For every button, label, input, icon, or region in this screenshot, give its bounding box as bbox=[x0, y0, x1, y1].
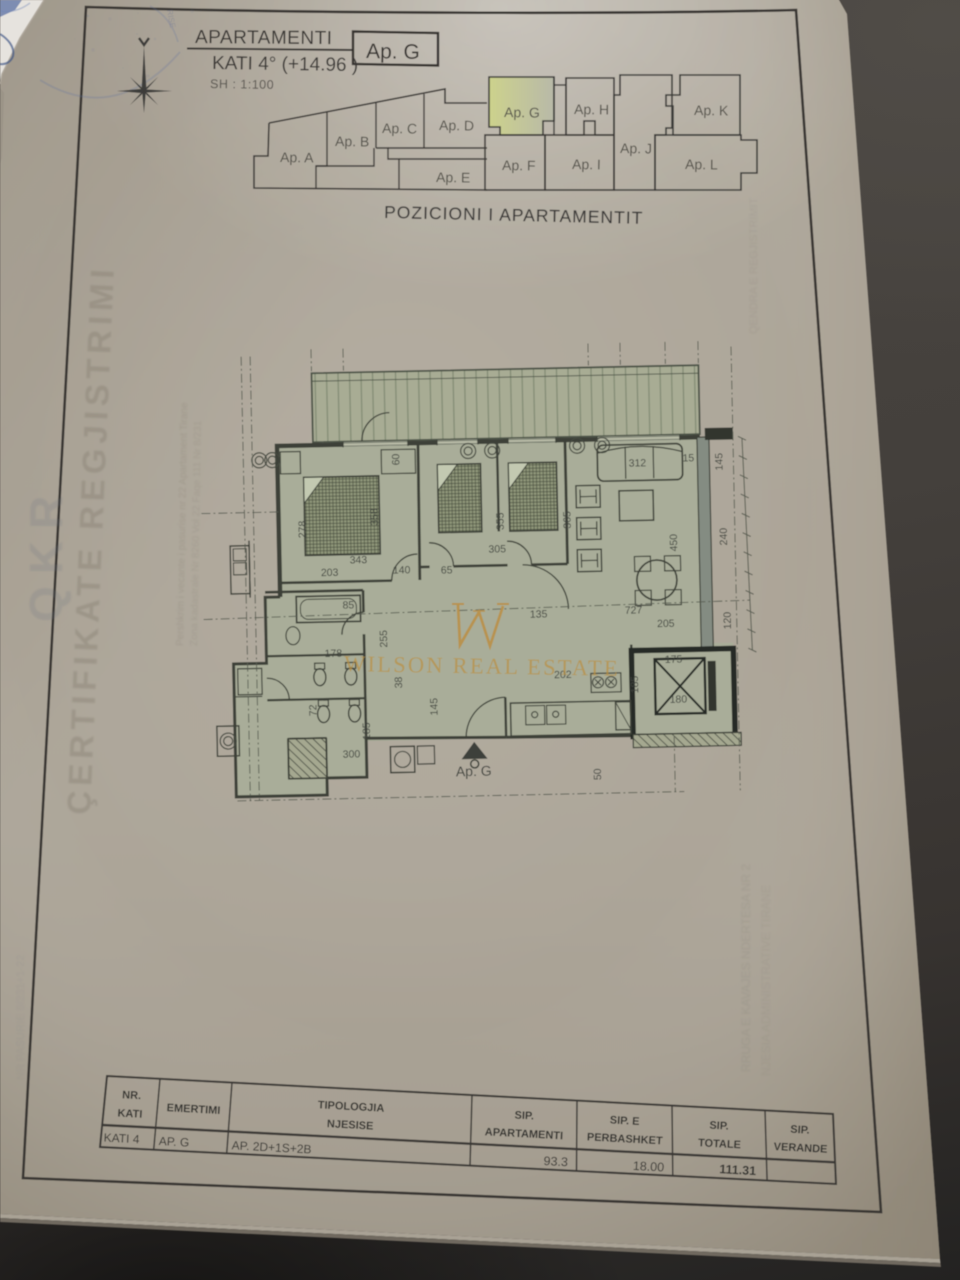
svg-text:Ap. K: Ap. K bbox=[694, 102, 729, 119]
svg-text:TOTALE: TOTALE bbox=[698, 1137, 742, 1151]
svg-text:727: 727 bbox=[625, 604, 643, 616]
svg-text:SIP. E: SIP. E bbox=[609, 1114, 639, 1128]
svg-text:Ap. I: Ap. I bbox=[572, 156, 601, 173]
svg-text:Ap. B: Ap. B bbox=[335, 133, 370, 150]
svg-text:185: 185 bbox=[629, 676, 641, 694]
svg-text:SH : 1:100: SH : 1:100 bbox=[210, 77, 274, 92]
svg-text:Ap. E: Ap. E bbox=[436, 169, 471, 186]
svg-text:QKR: QKR bbox=[20, 484, 72, 622]
svg-text:305: 305 bbox=[488, 543, 506, 555]
svg-text:NR PASURIE 8/231+1-22: NR PASURIE 8/231+1-22 bbox=[15, 955, 27, 1080]
svg-text:18.00: 18.00 bbox=[633, 1159, 665, 1175]
svg-text:111.31: 111.31 bbox=[719, 1162, 757, 1178]
svg-text:120: 120 bbox=[722, 612, 734, 630]
svg-text:APARTAMENTI: APARTAMENTI bbox=[195, 27, 333, 49]
svg-text:358: 358 bbox=[368, 508, 380, 526]
svg-text:255: 255 bbox=[378, 630, 390, 648]
svg-text:140: 140 bbox=[393, 564, 411, 576]
svg-text:Ap. G: Ap. G bbox=[504, 104, 540, 121]
svg-text:312: 312 bbox=[629, 457, 647, 469]
svg-text:KATI 4° (+14.96 ): KATI 4° (+14.96 ) bbox=[212, 53, 358, 76]
svg-text:RRUGA E KAVAJES NDERTESA NR 2: RRUGA E KAVAJES NDERTESA NR 2 bbox=[739, 864, 753, 1072]
svg-text:KATI: KATI bbox=[117, 1107, 142, 1120]
svg-text:180: 180 bbox=[670, 693, 688, 705]
svg-text:205: 205 bbox=[657, 618, 675, 630]
svg-text:Ap. G: Ap. G bbox=[456, 763, 492, 780]
svg-text:Ap. J: Ap. J bbox=[620, 140, 652, 157]
svg-text:355: 355 bbox=[494, 512, 506, 530]
svg-text:NJESISE: NJESISE bbox=[327, 1118, 374, 1132]
svg-text:Ap. H: Ap. H bbox=[574, 101, 609, 118]
svg-text:NR.: NR. bbox=[122, 1089, 142, 1102]
svg-text:15: 15 bbox=[682, 452, 694, 464]
svg-text:185: 185 bbox=[361, 722, 373, 740]
svg-text:KATI 4: KATI 4 bbox=[103, 1131, 140, 1147]
svg-text:Ap. A: Ap. A bbox=[280, 149, 314, 166]
svg-text:Ap. F: Ap. F bbox=[502, 157, 536, 174]
svg-text:SIP.: SIP. bbox=[514, 1110, 534, 1123]
svg-text:Ap. G: Ap. G bbox=[366, 40, 420, 64]
svg-text:QENDRA E REGJISTRIMIT: QENDRA E REGJISTRIMIT bbox=[748, 197, 760, 334]
svg-text:365: 365 bbox=[561, 511, 573, 529]
svg-text:450: 450 bbox=[668, 534, 680, 552]
svg-text:SIP.: SIP. bbox=[790, 1124, 810, 1137]
svg-text:145: 145 bbox=[713, 453, 725, 471]
svg-text:178: 178 bbox=[324, 648, 342, 660]
svg-text:72: 72 bbox=[307, 704, 319, 716]
svg-text:240: 240 bbox=[718, 528, 730, 546]
svg-text:85: 85 bbox=[342, 599, 354, 611]
svg-text:343: 343 bbox=[350, 554, 368, 566]
svg-text:Ap. D: Ap. D bbox=[439, 117, 474, 134]
svg-text:278: 278 bbox=[297, 520, 309, 538]
svg-text:Ap. C: Ap. C bbox=[382, 120, 417, 137]
svg-text:38: 38 bbox=[393, 676, 405, 688]
svg-text:SIP.: SIP. bbox=[709, 1120, 729, 1133]
svg-text:145: 145 bbox=[428, 698, 440, 716]
svg-text:AP. G: AP. G bbox=[158, 1134, 189, 1150]
svg-text:135: 135 bbox=[530, 608, 548, 620]
svg-text:60: 60 bbox=[390, 453, 402, 465]
svg-text:NJESIA ADMINISTRATIVE TIRANE: NJESIA ADMINISTRATIVE TIRANE bbox=[759, 885, 773, 1076]
svg-text:50: 50 bbox=[592, 768, 604, 780]
svg-text:65: 65 bbox=[441, 564, 453, 576]
svg-text:175: 175 bbox=[665, 654, 683, 666]
svg-text:300: 300 bbox=[343, 748, 361, 760]
svg-text:203: 203 bbox=[321, 567, 339, 579]
svg-text:93.3: 93.3 bbox=[543, 1154, 568, 1169]
svg-text:WILSON REAL ESTATE: WILSON REAL ESTATE bbox=[344, 651, 620, 681]
svg-text:Ap. L: Ap. L bbox=[685, 156, 718, 173]
